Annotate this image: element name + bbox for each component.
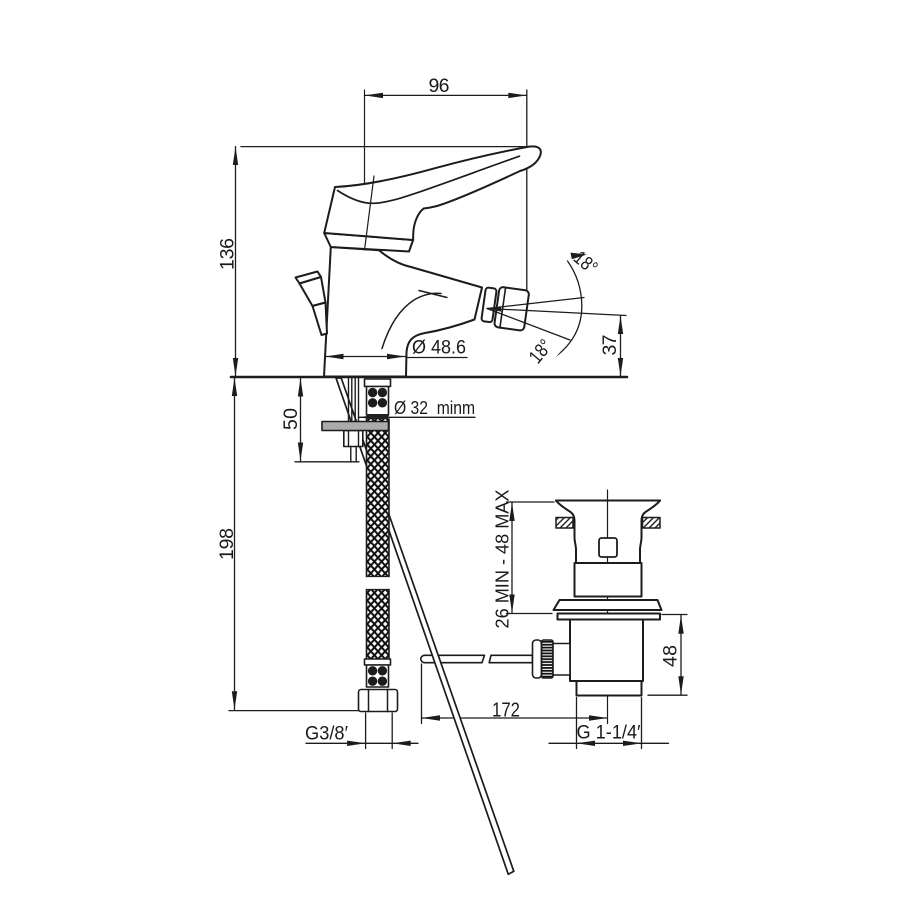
- svg-text:18°: 18°: [569, 247, 602, 279]
- svg-text:96: 96: [429, 75, 450, 97]
- svg-text:Ø 32 minm: Ø 32 minm: [394, 397, 475, 418]
- svg-text:Ø 48.6: Ø 48.6: [412, 337, 466, 359]
- svg-text:G 1-1/4′: G 1-1/4′: [577, 722, 641, 744]
- svg-text:G3/8′: G3/8′: [305, 723, 348, 745]
- svg-text:50: 50: [280, 408, 302, 430]
- svg-text:37: 37: [599, 335, 621, 356]
- svg-text:198: 198: [216, 528, 238, 560]
- svg-text:172: 172: [492, 699, 520, 722]
- svg-text:26 MIN - 48 MAX: 26 MIN - 48 MAX: [492, 490, 513, 629]
- svg-text:136: 136: [217, 238, 239, 270]
- svg-text:48: 48: [660, 645, 682, 667]
